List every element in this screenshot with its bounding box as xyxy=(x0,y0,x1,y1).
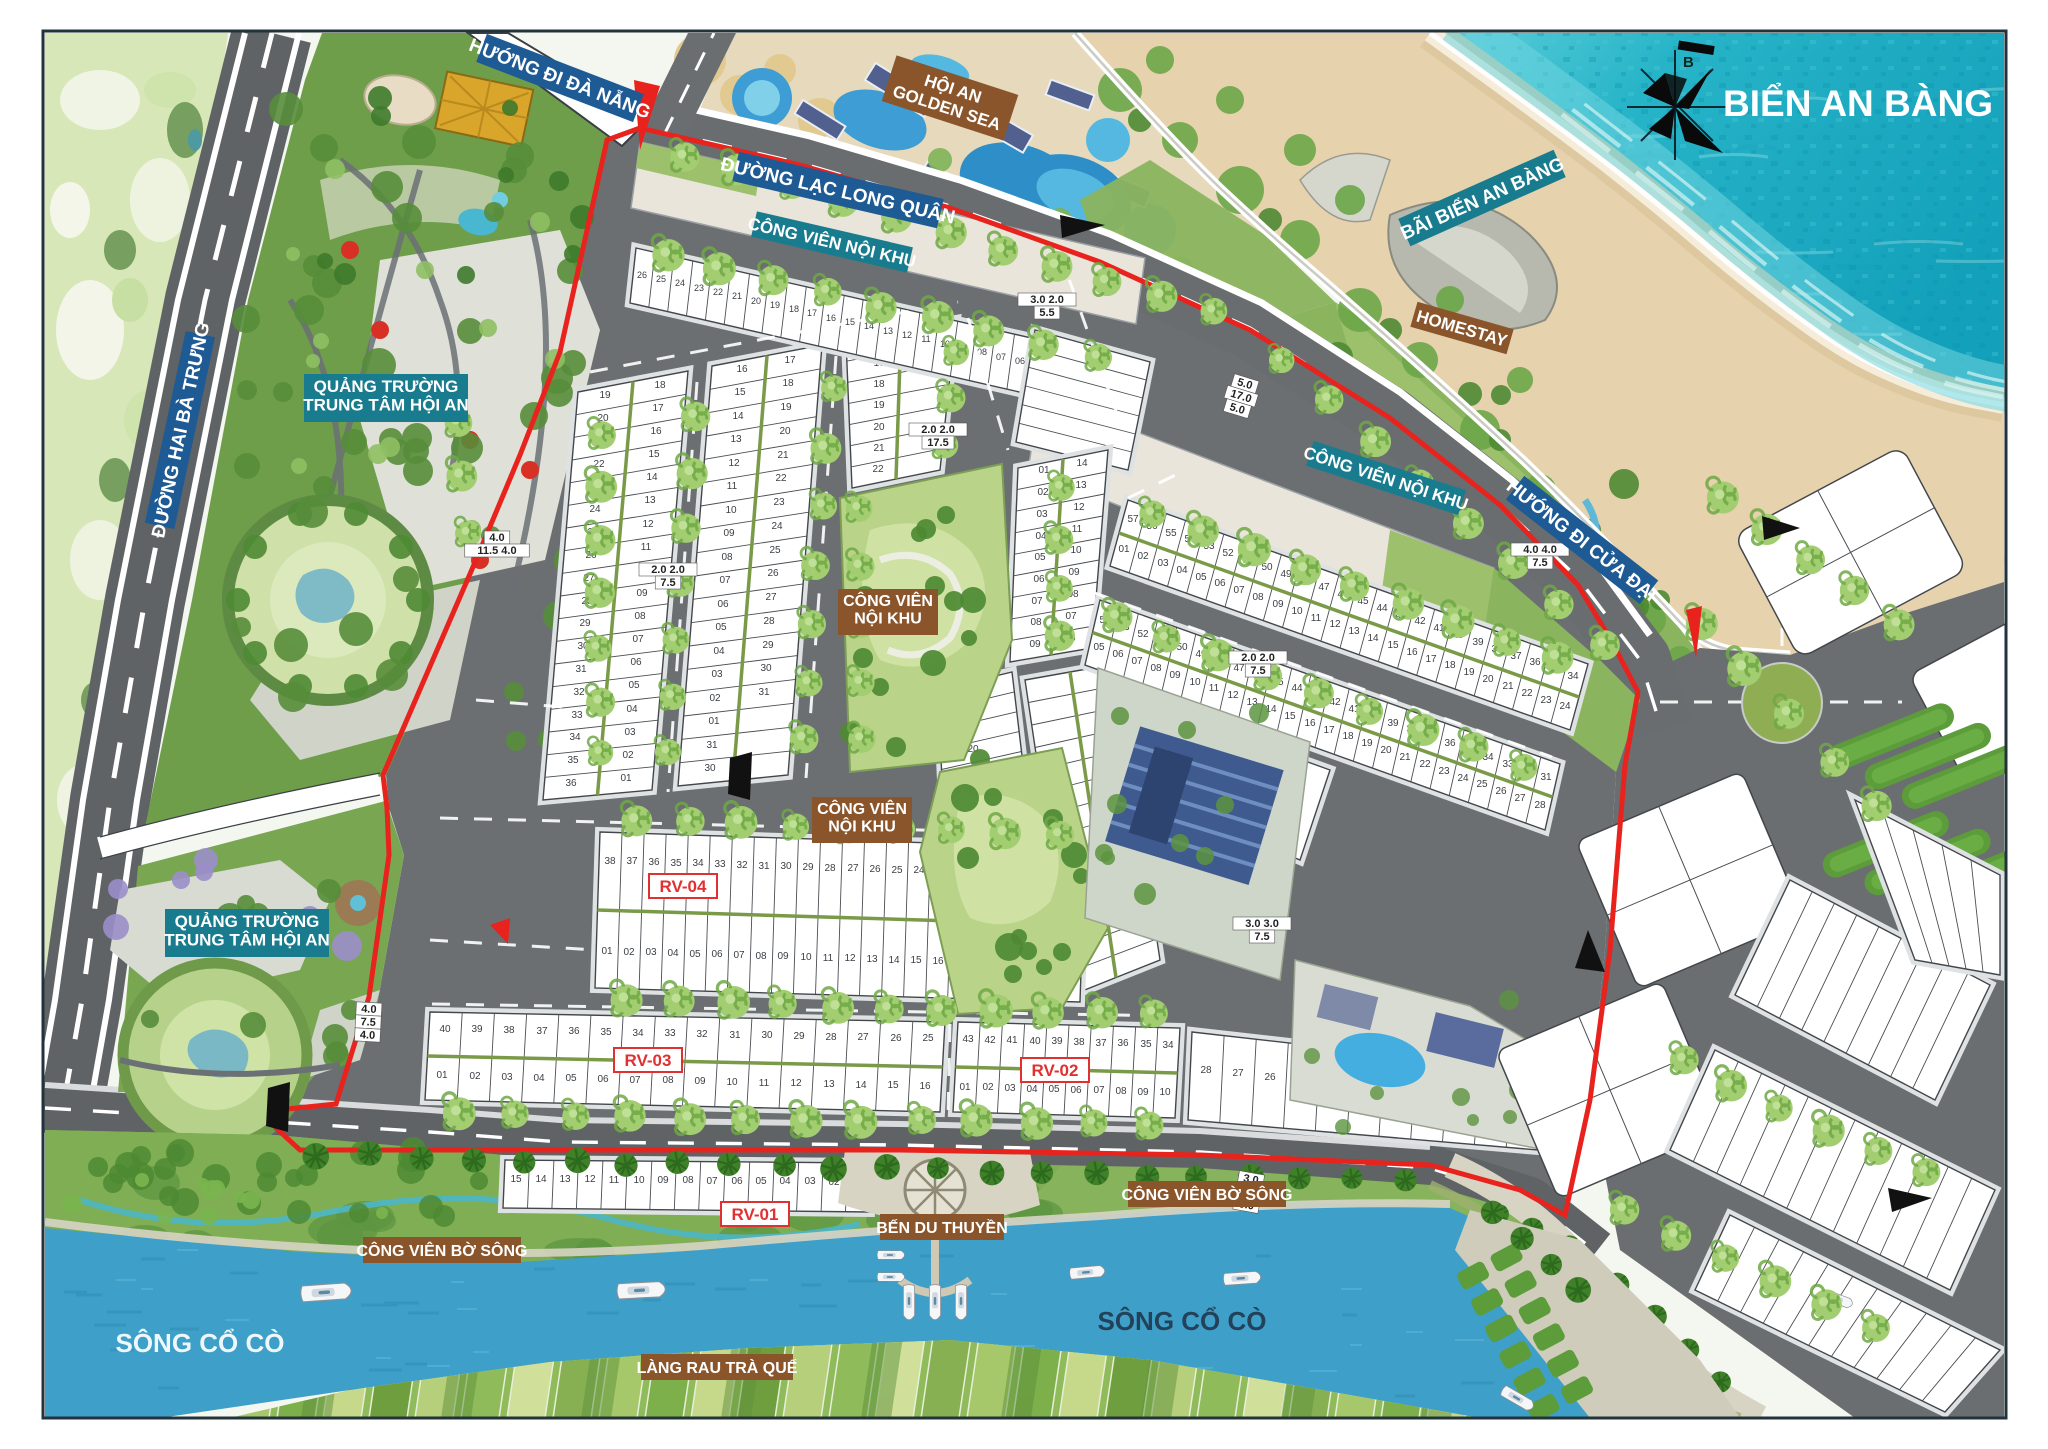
svg-text:19: 19 xyxy=(873,400,885,411)
svg-text:42: 42 xyxy=(984,1035,996,1046)
svg-text:20: 20 xyxy=(1482,674,1494,685)
svg-text:17: 17 xyxy=(1323,725,1335,736)
svg-text:CÔNG VIÊN: CÔNG VIÊN xyxy=(843,591,933,610)
svg-text:34: 34 xyxy=(1567,671,1579,682)
svg-text:31: 31 xyxy=(706,740,718,751)
svg-text:7.5: 7.5 xyxy=(1532,557,1547,569)
svg-text:22: 22 xyxy=(775,473,787,484)
svg-text:12: 12 xyxy=(844,953,856,964)
svg-text:18: 18 xyxy=(782,378,794,389)
svg-text:02: 02 xyxy=(1137,551,1149,562)
svg-text:12: 12 xyxy=(902,330,912,340)
svg-text:QUẢNG TRƯỜNG: QUẢNG TRƯỜNG xyxy=(314,377,459,396)
svg-text:21: 21 xyxy=(777,450,789,461)
svg-text:15: 15 xyxy=(648,449,660,460)
svg-text:13: 13 xyxy=(1348,626,1360,637)
svg-text:SÔNG CỔ CÒ: SÔNG CỔ CÒ xyxy=(1097,1306,1266,1336)
svg-text:11: 11 xyxy=(641,542,652,553)
svg-text:07: 07 xyxy=(629,1075,641,1086)
svg-text:32: 32 xyxy=(736,860,748,871)
svg-text:05: 05 xyxy=(565,1073,577,1084)
svg-text:35: 35 xyxy=(567,755,579,766)
svg-text:28: 28 xyxy=(825,1032,837,1043)
svg-text:26: 26 xyxy=(1495,786,1507,797)
svg-text:30: 30 xyxy=(760,663,772,674)
svg-text:BẾN DU THUYỀN: BẾN DU THUYỀN xyxy=(876,1218,1008,1237)
svg-text:03: 03 xyxy=(501,1072,513,1083)
svg-text:15: 15 xyxy=(510,1174,522,1185)
svg-text:18: 18 xyxy=(1342,731,1354,742)
svg-text:17.5: 17.5 xyxy=(927,437,948,449)
svg-text:15: 15 xyxy=(910,955,922,966)
svg-text:16: 16 xyxy=(736,364,748,375)
svg-text:19: 19 xyxy=(780,402,792,413)
svg-text:14: 14 xyxy=(855,1080,867,1091)
svg-text:38: 38 xyxy=(604,856,616,867)
svg-text:13: 13 xyxy=(866,954,878,965)
svg-text:27: 27 xyxy=(765,592,777,603)
svg-text:01: 01 xyxy=(620,773,632,784)
svg-text:31: 31 xyxy=(1540,772,1552,783)
svg-text:07: 07 xyxy=(996,352,1006,362)
svg-text:BIỂN AN BÀNG: BIỂN AN BÀNG xyxy=(1723,82,1993,124)
svg-text:11: 11 xyxy=(759,1078,770,1089)
svg-text:01: 01 xyxy=(1118,544,1130,555)
svg-text:12: 12 xyxy=(642,519,654,530)
svg-text:28: 28 xyxy=(1200,1065,1212,1076)
svg-text:08: 08 xyxy=(1030,617,1042,628)
svg-text:12: 12 xyxy=(584,1174,596,1185)
svg-text:09: 09 xyxy=(1272,599,1284,610)
svg-text:03: 03 xyxy=(1036,509,1048,520)
svg-text:03: 03 xyxy=(711,669,723,680)
svg-text:38: 38 xyxy=(503,1025,515,1036)
svg-text:19: 19 xyxy=(1361,738,1373,749)
svg-text:09: 09 xyxy=(1169,670,1181,681)
svg-text:27: 27 xyxy=(847,863,859,874)
svg-text:26: 26 xyxy=(637,270,647,280)
svg-text:B: B xyxy=(1683,54,1694,71)
svg-text:20: 20 xyxy=(751,296,761,306)
svg-text:13: 13 xyxy=(1075,480,1087,491)
svg-text:12: 12 xyxy=(790,1078,802,1089)
svg-text:16: 16 xyxy=(1406,647,1418,658)
svg-text:06: 06 xyxy=(1015,356,1025,366)
svg-text:NỘI KHU: NỘI KHU xyxy=(828,816,896,835)
svg-text:05: 05 xyxy=(715,622,727,633)
svg-text:40: 40 xyxy=(1029,1036,1041,1047)
svg-text:25: 25 xyxy=(1476,779,1488,790)
svg-text:4.0 4.0: 4.0 4.0 xyxy=(1523,544,1557,556)
svg-text:16: 16 xyxy=(1304,718,1316,729)
svg-text:13: 13 xyxy=(730,434,742,445)
svg-text:47: 47 xyxy=(1318,582,1330,593)
svg-text:34: 34 xyxy=(632,1028,644,1039)
svg-text:55: 55 xyxy=(1165,528,1177,539)
svg-text:36: 36 xyxy=(1529,657,1541,668)
svg-text:08: 08 xyxy=(662,1075,674,1086)
svg-text:28: 28 xyxy=(763,616,775,627)
svg-text:09: 09 xyxy=(723,528,735,539)
svg-text:06: 06 xyxy=(731,1176,743,1187)
svg-text:31: 31 xyxy=(758,687,770,698)
svg-text:11: 11 xyxy=(727,481,738,492)
svg-text:36: 36 xyxy=(1117,1038,1129,1049)
svg-text:TRUNG TÂM HỘI AN: TRUNG TÂM HỘI AN xyxy=(164,931,330,950)
svg-text:29: 29 xyxy=(762,640,774,651)
svg-text:SÔNG CỔ CÒ: SÔNG CỔ CÒ xyxy=(115,1328,284,1358)
svg-text:32: 32 xyxy=(696,1029,708,1040)
svg-text:02: 02 xyxy=(1037,487,1049,498)
svg-text:27: 27 xyxy=(1232,1068,1244,1079)
svg-text:07: 07 xyxy=(1065,611,1077,622)
svg-text:08: 08 xyxy=(634,611,646,622)
svg-text:30: 30 xyxy=(704,763,716,774)
svg-text:05: 05 xyxy=(755,1176,767,1187)
svg-text:7.5: 7.5 xyxy=(1250,665,1265,677)
svg-text:19: 19 xyxy=(599,390,611,401)
svg-text:52: 52 xyxy=(1222,548,1234,559)
svg-text:26: 26 xyxy=(1264,1072,1276,1083)
svg-text:3.0 2.0: 3.0 2.0 xyxy=(1030,294,1064,306)
svg-text:17: 17 xyxy=(807,308,817,318)
svg-text:23: 23 xyxy=(773,497,785,508)
svg-text:39: 39 xyxy=(1387,718,1399,729)
svg-text:2.0 2.0: 2.0 2.0 xyxy=(651,564,685,576)
svg-text:11.5 4.0: 11.5 4.0 xyxy=(477,545,516,557)
svg-text:10: 10 xyxy=(726,1077,738,1088)
svg-text:27: 27 xyxy=(1514,793,1526,804)
svg-text:16: 16 xyxy=(826,313,836,323)
svg-text:02: 02 xyxy=(623,947,635,958)
svg-text:07: 07 xyxy=(733,950,745,961)
svg-text:35: 35 xyxy=(1140,1039,1152,1050)
svg-text:39: 39 xyxy=(1051,1036,1063,1047)
svg-text:13: 13 xyxy=(823,1079,835,1090)
svg-text:26: 26 xyxy=(890,1033,902,1044)
svg-text:2.0 2.0: 2.0 2.0 xyxy=(921,424,955,436)
svg-text:33: 33 xyxy=(571,710,583,721)
svg-text:09: 09 xyxy=(1137,1087,1149,1098)
svg-text:25: 25 xyxy=(891,865,903,876)
svg-text:37: 37 xyxy=(1095,1038,1107,1049)
svg-text:06: 06 xyxy=(1070,1085,1082,1096)
svg-text:11: 11 xyxy=(1209,683,1220,694)
svg-text:04: 04 xyxy=(1176,565,1188,576)
svg-text:07: 07 xyxy=(1233,585,1245,596)
svg-text:39: 39 xyxy=(471,1024,483,1035)
svg-text:37: 37 xyxy=(536,1026,548,1037)
svg-text:08: 08 xyxy=(1150,663,1162,674)
svg-text:07: 07 xyxy=(1131,656,1143,667)
svg-text:05: 05 xyxy=(1195,572,1207,583)
svg-text:26: 26 xyxy=(767,568,779,579)
svg-text:12: 12 xyxy=(728,458,740,469)
svg-text:02: 02 xyxy=(469,1071,481,1082)
svg-text:7.5: 7.5 xyxy=(660,577,675,589)
svg-text:28: 28 xyxy=(824,863,836,874)
svg-text:07: 07 xyxy=(632,634,644,645)
svg-text:10: 10 xyxy=(725,505,737,516)
svg-text:33: 33 xyxy=(664,1028,676,1039)
svg-text:24: 24 xyxy=(1457,773,1469,784)
svg-text:19: 19 xyxy=(770,300,780,310)
svg-text:27: 27 xyxy=(857,1032,869,1043)
svg-text:06: 06 xyxy=(1112,649,1124,660)
svg-text:10: 10 xyxy=(633,1175,645,1186)
svg-text:17: 17 xyxy=(652,403,664,414)
svg-text:31: 31 xyxy=(758,861,770,872)
svg-text:24: 24 xyxy=(589,504,601,515)
svg-text:08: 08 xyxy=(1252,592,1264,603)
svg-text:25: 25 xyxy=(922,1033,934,1044)
svg-text:13: 13 xyxy=(644,495,656,506)
svg-text:07: 07 xyxy=(706,1176,718,1187)
svg-text:18: 18 xyxy=(654,380,666,391)
svg-text:2.0 2.0: 2.0 2.0 xyxy=(1241,652,1275,664)
svg-text:36: 36 xyxy=(648,857,660,868)
svg-text:09: 09 xyxy=(636,588,648,599)
svg-text:10: 10 xyxy=(1159,1087,1171,1098)
svg-text:3.0 3.0: 3.0 3.0 xyxy=(1245,918,1279,930)
svg-text:31: 31 xyxy=(575,664,587,675)
svg-text:01: 01 xyxy=(436,1070,448,1081)
svg-text:17: 17 xyxy=(784,355,796,366)
svg-text:07: 07 xyxy=(719,575,731,586)
svg-text:14: 14 xyxy=(732,411,744,422)
svg-text:21: 21 xyxy=(873,443,885,454)
svg-text:01: 01 xyxy=(959,1082,971,1093)
svg-text:08: 08 xyxy=(721,552,733,563)
svg-text:44: 44 xyxy=(1291,683,1303,694)
svg-text:01: 01 xyxy=(708,716,720,727)
svg-text:RV-04: RV-04 xyxy=(660,877,707,896)
svg-text:03: 03 xyxy=(624,727,636,738)
svg-text:18: 18 xyxy=(789,304,799,314)
svg-text:08: 08 xyxy=(1115,1086,1127,1097)
svg-text:11: 11 xyxy=(921,334,930,344)
svg-text:20: 20 xyxy=(873,422,885,433)
svg-text:04: 04 xyxy=(1026,1084,1038,1095)
svg-text:29: 29 xyxy=(793,1031,805,1042)
svg-text:44: 44 xyxy=(1376,603,1388,614)
svg-text:04: 04 xyxy=(779,1176,791,1187)
svg-text:06: 06 xyxy=(717,599,729,610)
svg-text:39: 39 xyxy=(1472,637,1484,648)
svg-text:QUẢNG TRƯỜNG: QUẢNG TRƯỜNG xyxy=(175,912,320,931)
svg-text:02: 02 xyxy=(982,1082,994,1093)
svg-text:38: 38 xyxy=(1073,1037,1085,1048)
svg-text:15: 15 xyxy=(845,317,855,327)
svg-text:15: 15 xyxy=(734,387,746,398)
svg-text:22: 22 xyxy=(713,287,723,297)
svg-text:RV-01: RV-01 xyxy=(732,1205,779,1224)
svg-text:10: 10 xyxy=(1291,606,1303,617)
svg-text:08: 08 xyxy=(682,1175,694,1186)
svg-text:14: 14 xyxy=(1076,458,1088,469)
svg-text:7.5: 7.5 xyxy=(360,1016,376,1029)
svg-text:03: 03 xyxy=(645,947,657,958)
svg-text:06: 06 xyxy=(1214,578,1226,589)
svg-text:04: 04 xyxy=(533,1073,545,1084)
svg-text:15: 15 xyxy=(1387,640,1399,651)
svg-text:14: 14 xyxy=(646,472,658,483)
svg-text:57: 57 xyxy=(1127,514,1139,525)
svg-text:35: 35 xyxy=(670,858,682,869)
svg-text:33: 33 xyxy=(714,859,726,870)
svg-text:11: 11 xyxy=(1072,524,1083,535)
svg-text:24: 24 xyxy=(675,278,685,288)
svg-text:09: 09 xyxy=(657,1175,669,1186)
svg-text:23: 23 xyxy=(1438,766,1450,777)
svg-text:34: 34 xyxy=(692,858,704,869)
svg-text:12: 12 xyxy=(1227,690,1239,701)
svg-text:29: 29 xyxy=(802,862,814,873)
svg-text:06: 06 xyxy=(711,949,723,960)
svg-text:08: 08 xyxy=(755,951,767,962)
svg-text:09: 09 xyxy=(1029,639,1041,650)
svg-text:20: 20 xyxy=(779,426,791,437)
svg-text:09: 09 xyxy=(777,951,789,962)
svg-text:09: 09 xyxy=(694,1076,706,1087)
svg-text:12: 12 xyxy=(1329,619,1341,630)
svg-text:4.0: 4.0 xyxy=(360,1029,376,1042)
svg-text:16: 16 xyxy=(919,1081,931,1092)
svg-text:22: 22 xyxy=(1419,759,1431,770)
svg-text:21: 21 xyxy=(1399,752,1411,763)
svg-text:4.0: 4.0 xyxy=(361,1003,377,1016)
svg-text:17: 17 xyxy=(1425,654,1437,665)
svg-text:04: 04 xyxy=(667,948,679,959)
svg-text:40: 40 xyxy=(439,1024,451,1035)
svg-text:TRUNG TÂM HỘI AN: TRUNG TÂM HỘI AN xyxy=(303,396,469,415)
svg-text:28: 28 xyxy=(1534,800,1546,811)
svg-text:25: 25 xyxy=(656,274,666,284)
svg-text:02: 02 xyxy=(709,693,721,704)
svg-text:RV-02: RV-02 xyxy=(1032,1061,1079,1080)
svg-text:13: 13 xyxy=(559,1174,571,1185)
svg-text:04: 04 xyxy=(713,646,725,657)
svg-text:22: 22 xyxy=(1521,688,1533,699)
svg-text:34: 34 xyxy=(569,732,581,743)
svg-text:02: 02 xyxy=(622,750,634,761)
svg-text:25: 25 xyxy=(769,545,781,556)
svg-text:7.5: 7.5 xyxy=(1254,931,1269,943)
svg-text:30: 30 xyxy=(761,1030,773,1041)
svg-text:06: 06 xyxy=(1033,574,1045,585)
svg-text:13: 13 xyxy=(883,326,893,336)
svg-text:34: 34 xyxy=(1162,1040,1174,1051)
svg-text:47: 47 xyxy=(1233,663,1245,674)
svg-text:15: 15 xyxy=(1284,711,1296,722)
svg-text:04: 04 xyxy=(626,704,638,715)
svg-text:CÔNG VIÊN BỜ SÔNG: CÔNG VIÊN BỜ SÔNG xyxy=(1122,1185,1293,1204)
svg-text:RV-03: RV-03 xyxy=(625,1051,672,1070)
svg-text:05: 05 xyxy=(1093,642,1105,653)
svg-text:24: 24 xyxy=(771,521,783,532)
svg-text:11: 11 xyxy=(823,953,834,964)
svg-text:12: 12 xyxy=(1073,502,1085,513)
svg-text:4.0: 4.0 xyxy=(489,532,504,544)
svg-text:35: 35 xyxy=(600,1027,612,1038)
svg-text:32: 32 xyxy=(573,687,585,698)
svg-text:05: 05 xyxy=(1034,552,1046,563)
svg-text:03: 03 xyxy=(1004,1083,1016,1094)
svg-text:LÀNG RAU TRÀ QUẾ: LÀNG RAU TRÀ QUẾ xyxy=(637,1358,798,1377)
svg-text:19: 19 xyxy=(1463,667,1475,678)
svg-text:01: 01 xyxy=(601,946,613,957)
svg-text:36: 36 xyxy=(1444,738,1456,749)
svg-text:36: 36 xyxy=(565,778,577,789)
svg-text:09: 09 xyxy=(1068,567,1080,578)
svg-text:05: 05 xyxy=(628,680,640,691)
svg-text:03: 03 xyxy=(1157,558,1169,569)
svg-text:29: 29 xyxy=(579,618,591,629)
svg-text:06: 06 xyxy=(630,657,642,668)
svg-text:5.5: 5.5 xyxy=(1039,307,1054,319)
svg-text:10: 10 xyxy=(800,952,812,963)
svg-text:05: 05 xyxy=(689,949,701,960)
svg-text:03: 03 xyxy=(804,1176,816,1187)
svg-text:18: 18 xyxy=(1444,660,1456,671)
svg-text:15: 15 xyxy=(887,1080,899,1091)
svg-text:21: 21 xyxy=(1502,681,1514,692)
svg-text:07: 07 xyxy=(1093,1085,1105,1096)
svg-text:18: 18 xyxy=(873,379,885,390)
svg-text:14: 14 xyxy=(535,1174,547,1185)
svg-text:26: 26 xyxy=(869,864,881,875)
svg-text:30: 30 xyxy=(780,861,792,872)
svg-text:06: 06 xyxy=(597,1074,609,1085)
svg-text:23: 23 xyxy=(1540,695,1552,706)
svg-text:14: 14 xyxy=(1367,633,1379,644)
svg-text:20: 20 xyxy=(1380,745,1392,756)
svg-text:21: 21 xyxy=(732,291,742,301)
svg-text:23: 23 xyxy=(694,283,704,293)
svg-text:14: 14 xyxy=(888,955,900,966)
svg-text:10: 10 xyxy=(1070,545,1082,556)
svg-text:41: 41 xyxy=(1006,1035,1018,1046)
svg-text:11: 11 xyxy=(609,1175,620,1186)
svg-text:11: 11 xyxy=(1311,613,1322,624)
svg-text:07: 07 xyxy=(1031,596,1043,607)
svg-text:05: 05 xyxy=(1048,1084,1060,1095)
svg-text:36: 36 xyxy=(568,1026,580,1037)
svg-text:16: 16 xyxy=(932,956,944,967)
svg-text:37: 37 xyxy=(626,856,638,867)
svg-text:22: 22 xyxy=(872,464,884,475)
svg-text:NỘI KHU: NỘI KHU xyxy=(854,608,922,627)
svg-text:24: 24 xyxy=(1559,701,1571,712)
svg-text:52: 52 xyxy=(1137,629,1149,640)
svg-text:CÔNG VIÊN BỜ SÔNG: CÔNG VIÊN BỜ SÔNG xyxy=(357,1241,528,1260)
svg-text:43: 43 xyxy=(962,1034,974,1045)
svg-text:31: 31 xyxy=(729,1030,741,1041)
svg-text:16: 16 xyxy=(650,426,662,437)
svg-text:CÔNG VIÊN: CÔNG VIÊN xyxy=(817,799,907,818)
svg-text:10: 10 xyxy=(1189,677,1201,688)
